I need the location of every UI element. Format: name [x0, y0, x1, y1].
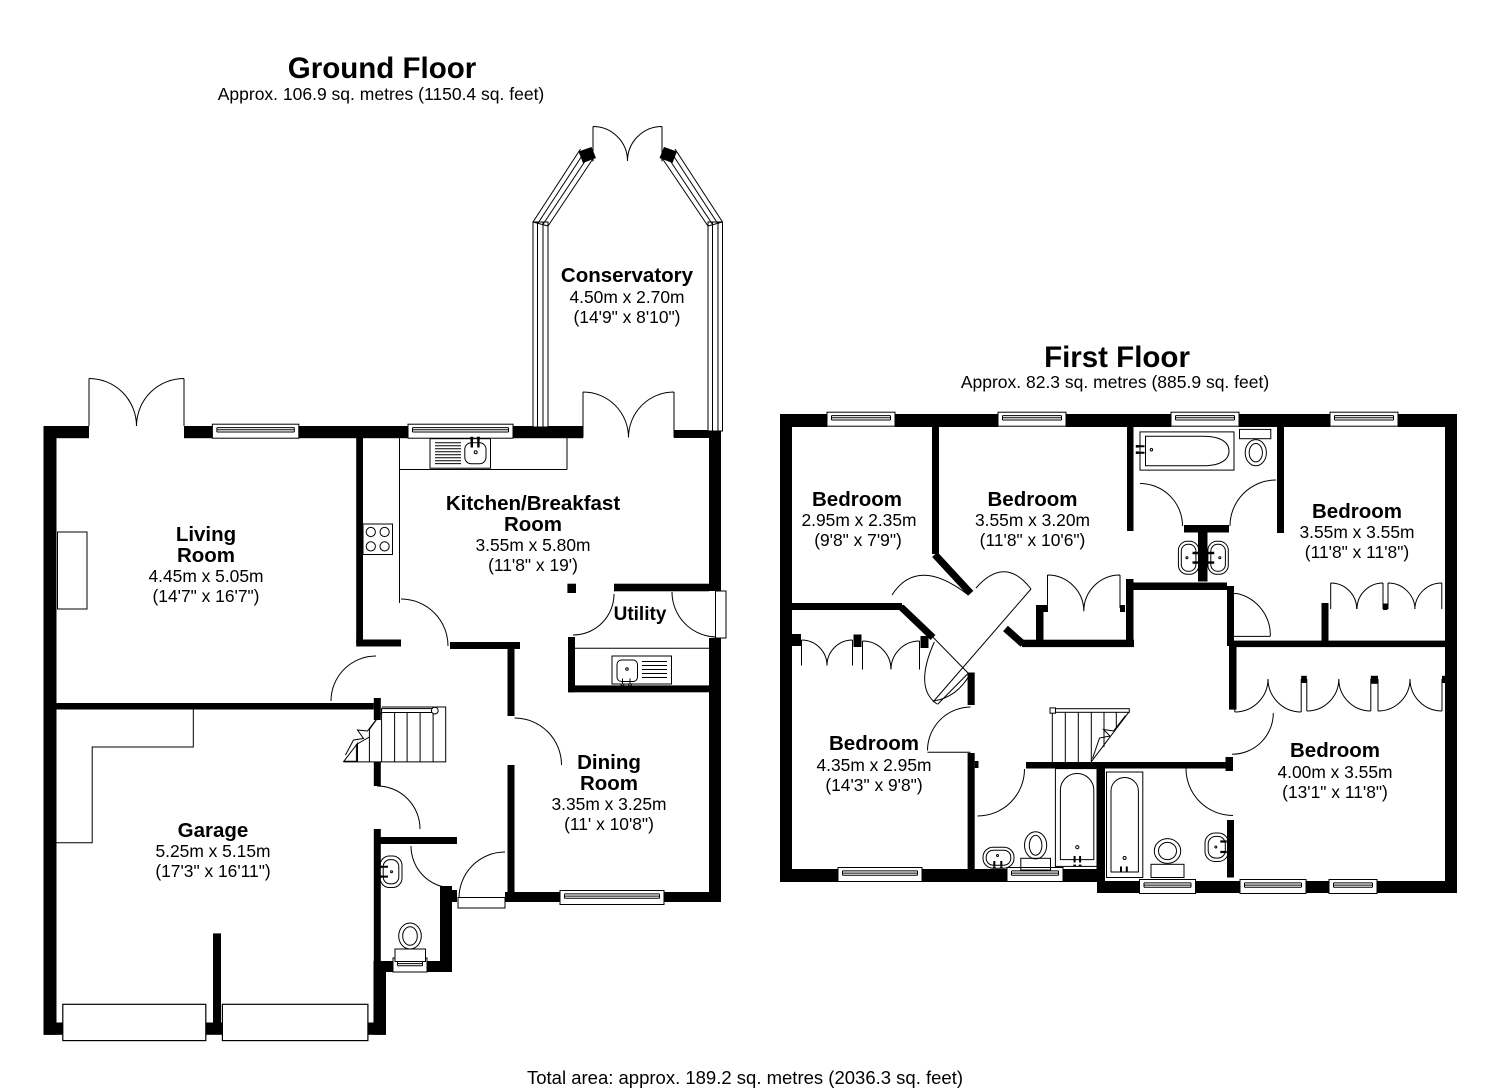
svg-text:3.55m x 3.55m: 3.55m x 3.55m [1299, 522, 1414, 542]
svg-text:(17'3" x 16'11"): (17'3" x 16'11") [155, 861, 270, 881]
svg-text:3.35m x 3.25m: 3.35m x 3.25m [551, 794, 666, 814]
svg-text:Room: Room [177, 544, 235, 567]
svg-text:Dining: Dining [577, 751, 641, 774]
svg-text:5.25m x 5.15m: 5.25m x 5.15m [155, 841, 270, 861]
svg-text:2.95m x 2.35m: 2.95m x 2.35m [801, 510, 916, 530]
svg-text:(11'8" x 19'): (11'8" x 19') [488, 555, 578, 575]
svg-text:(14'3" x 9'8"): (14'3" x 9'8") [825, 775, 922, 795]
svg-text:Bedroom: Bedroom [1290, 739, 1380, 762]
svg-text:(11' x 10'8"): (11' x 10'8") [564, 814, 654, 834]
svg-text:Room: Room [504, 513, 562, 536]
svg-text:Utility: Utility [614, 604, 667, 625]
svg-text:4.50m x 2.70m: 4.50m x 2.70m [569, 287, 684, 307]
svg-text:(11'8" x 10'6"): (11'8" x 10'6") [980, 530, 1086, 550]
svg-text:Room: Room [580, 772, 638, 795]
svg-text:4.35m x 2.95m: 4.35m x 2.95m [816, 755, 931, 775]
svg-text:(14'9" x 8'10"): (14'9" x 8'10") [574, 307, 681, 327]
svg-text:Ground Floor: Ground Floor [288, 52, 477, 85]
svg-text:(14'7" x 16'7"): (14'7" x 16'7") [153, 586, 260, 606]
svg-text:(9'8" x 7'9"): (9'8" x 7'9") [814, 530, 902, 550]
svg-text:First Floor: First Floor [1044, 341, 1190, 374]
svg-text:4.45m x 5.05m: 4.45m x 5.05m [148, 566, 263, 586]
svg-text:3.55m x 5.80m: 3.55m x 5.80m [475, 535, 590, 555]
svg-text:Bedroom: Bedroom [829, 732, 919, 755]
svg-text:Kitchen/Breakfast: Kitchen/Breakfast [446, 492, 620, 515]
svg-text:(13'1" x 11'8"): (13'1" x 11'8") [1282, 782, 1388, 802]
svg-text:3.55m x 3.20m: 3.55m x 3.20m [975, 510, 1090, 530]
svg-text:Bedroom: Bedroom [812, 488, 902, 511]
svg-text:(11'8" x 11'8"): (11'8" x 11'8") [1305, 542, 1409, 562]
svg-text:Total area: approx. 189.2 sq.: Total area: approx. 189.2 sq. metres (20… [527, 1067, 963, 1088]
svg-text:Garage: Garage [178, 819, 249, 842]
svg-text:Approx. 106.9 sq. metres (1150: Approx. 106.9 sq. metres (1150.4 sq. fee… [218, 84, 545, 104]
svg-text:Conservatory: Conservatory [561, 264, 694, 287]
svg-text:Approx. 82.3 sq. metres (885.9: Approx. 82.3 sq. metres (885.9 sq. feet) [961, 372, 1269, 392]
svg-text:Bedroom: Bedroom [1312, 500, 1402, 523]
svg-text:Living: Living [176, 523, 236, 546]
svg-text:Bedroom: Bedroom [988, 488, 1078, 511]
svg-text:4.00m x 3.55m: 4.00m x 3.55m [1277, 762, 1392, 782]
